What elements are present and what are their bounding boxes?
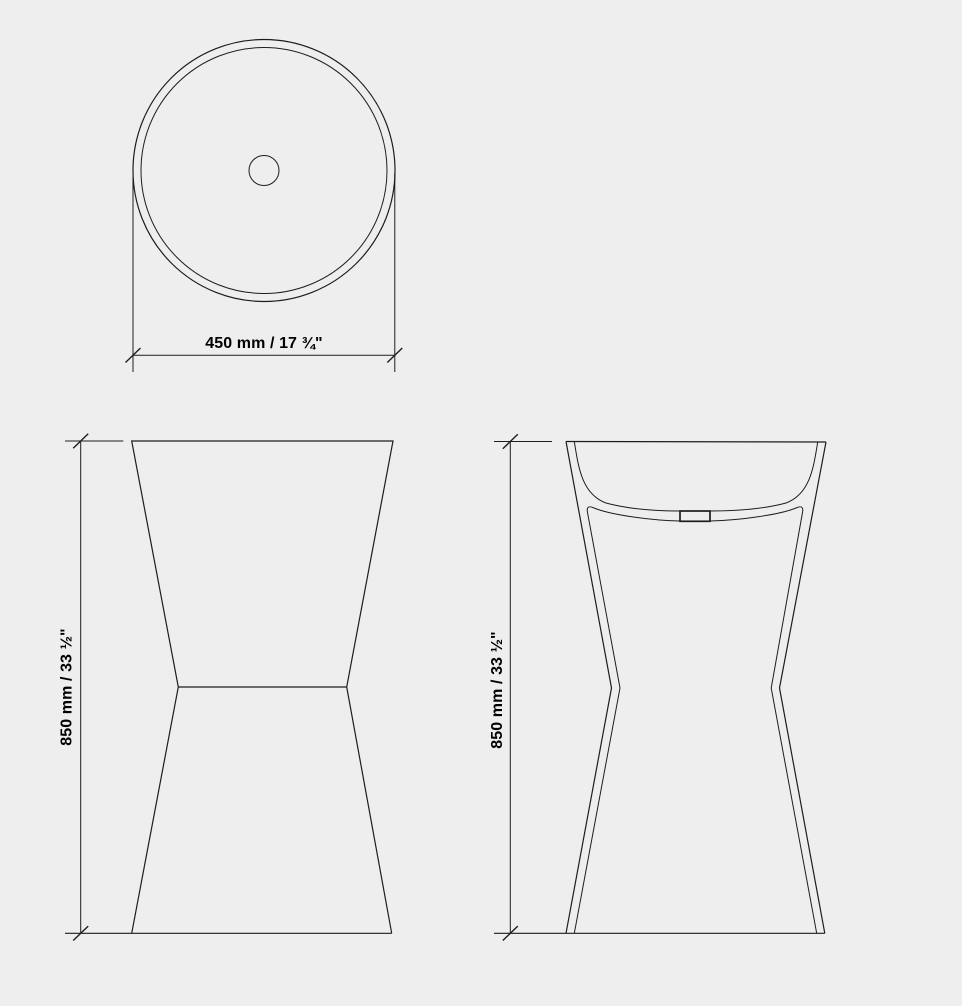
drain-rectangle	[680, 511, 710, 521]
technical-drawing-sheet: 450 mm / 17 ¾" 850 mm / 33 ½"	[0, 0, 962, 1006]
drain-circle	[249, 156, 279, 186]
bowl-underside-and-inner-wall-right	[710, 507, 817, 933]
bowl-interior-curve-right	[710, 442, 818, 511]
drawing-canvas: 450 mm / 17 ¾" 850 mm / 33 ½"	[0, 0, 962, 1006]
height-dimension-front: 850 mm / 33 ½"	[59, 434, 124, 941]
outer-rim-circle	[133, 40, 395, 302]
basin-section-view: 850 mm / 33 ½"	[489, 434, 826, 940]
inner-rim-circle	[141, 48, 387, 294]
width-dimension-label: 450 mm / 17 ¾"	[205, 335, 323, 352]
bowl-interior-curve-left	[574, 442, 680, 512]
height-dimension-label-section: 850 mm / 33 ½"	[489, 631, 506, 749]
section-outer-wall-left	[566, 442, 612, 934]
section-top-rim-line	[566, 442, 826, 443]
basin-front-view: 850 mm / 33 ½"	[59, 434, 393, 941]
basin-top-view: 450 mm / 17 ¾"	[126, 40, 403, 373]
height-dimension-section: 850 mm / 33 ½"	[489, 434, 552, 940]
width-dimension: 450 mm / 17 ¾"	[126, 173, 403, 372]
height-dimension-label-front: 850 mm / 33 ½"	[59, 628, 76, 746]
